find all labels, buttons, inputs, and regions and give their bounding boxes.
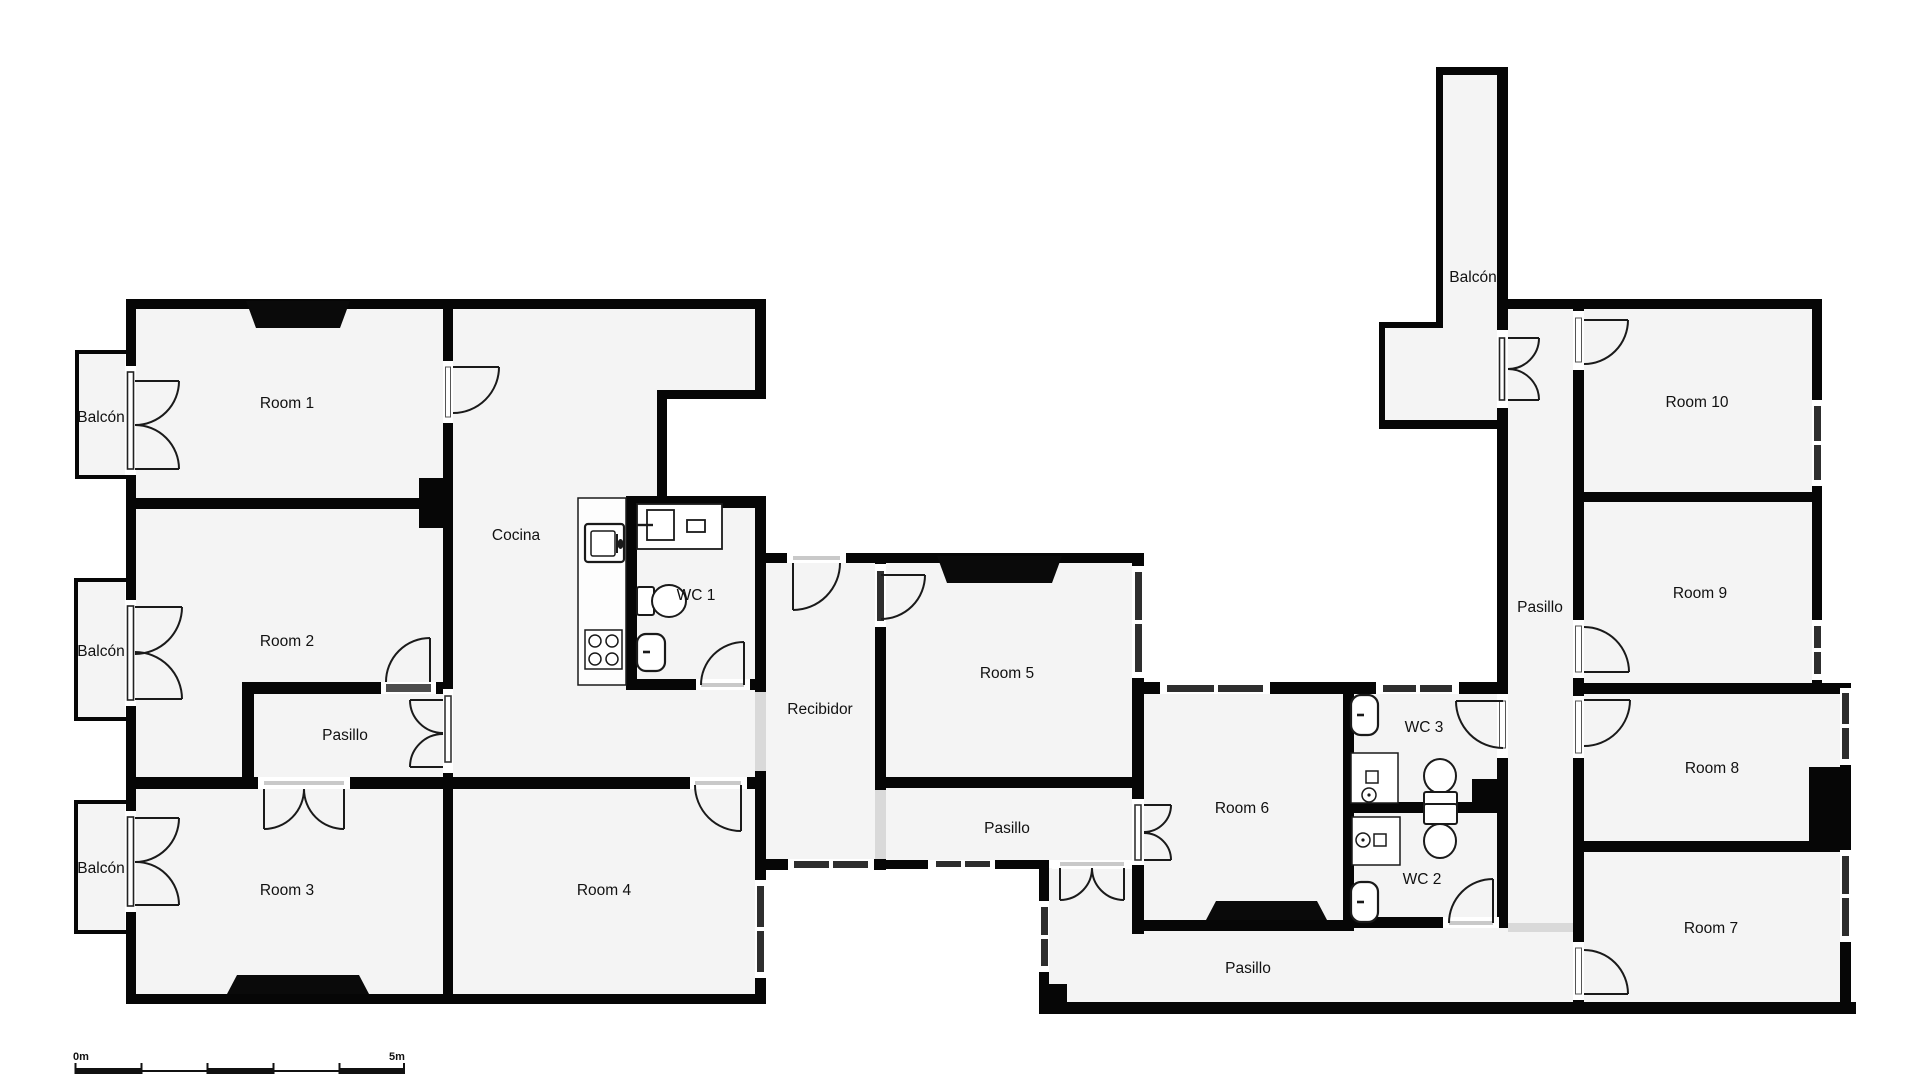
svg-text:Recibidor: Recibidor — [787, 701, 852, 718]
svg-text:WC 2: WC 2 — [1403, 871, 1442, 888]
svg-text:Pasillo: Pasillo — [1225, 960, 1271, 977]
svg-text:Balcón: Balcón — [77, 860, 124, 877]
svg-text:Room 10: Room 10 — [1666, 394, 1729, 411]
svg-text:Room 4: Room 4 — [577, 882, 632, 899]
svg-text:Room 8: Room 8 — [1685, 760, 1739, 777]
svg-text:Pasillo: Pasillo — [1517, 599, 1563, 616]
svg-text:Cocina: Cocina — [492, 527, 541, 544]
svg-text:Balcón: Balcón — [77, 409, 124, 426]
svg-text:Room 1: Room 1 — [260, 395, 314, 412]
svg-text:Room 2: Room 2 — [260, 633, 314, 650]
svg-text:Room 3: Room 3 — [260, 882, 314, 899]
svg-text:Room 6: Room 6 — [1215, 800, 1269, 817]
svg-text:WC 1: WC 1 — [677, 587, 716, 604]
svg-text:5m: 5m — [389, 1051, 405, 1063]
svg-text:Balcón: Balcón — [1449, 269, 1496, 286]
svg-text:Pasillo: Pasillo — [984, 820, 1030, 837]
svg-text:Room 7: Room 7 — [1684, 920, 1738, 937]
svg-text:Balcón: Balcón — [77, 643, 124, 660]
svg-text:0m: 0m — [73, 1051, 89, 1063]
svg-text:Room 5: Room 5 — [980, 665, 1034, 682]
svg-text:Pasillo: Pasillo — [322, 727, 368, 744]
svg-text:WC 3: WC 3 — [1405, 719, 1444, 736]
svg-text:Room 9: Room 9 — [1673, 585, 1727, 602]
